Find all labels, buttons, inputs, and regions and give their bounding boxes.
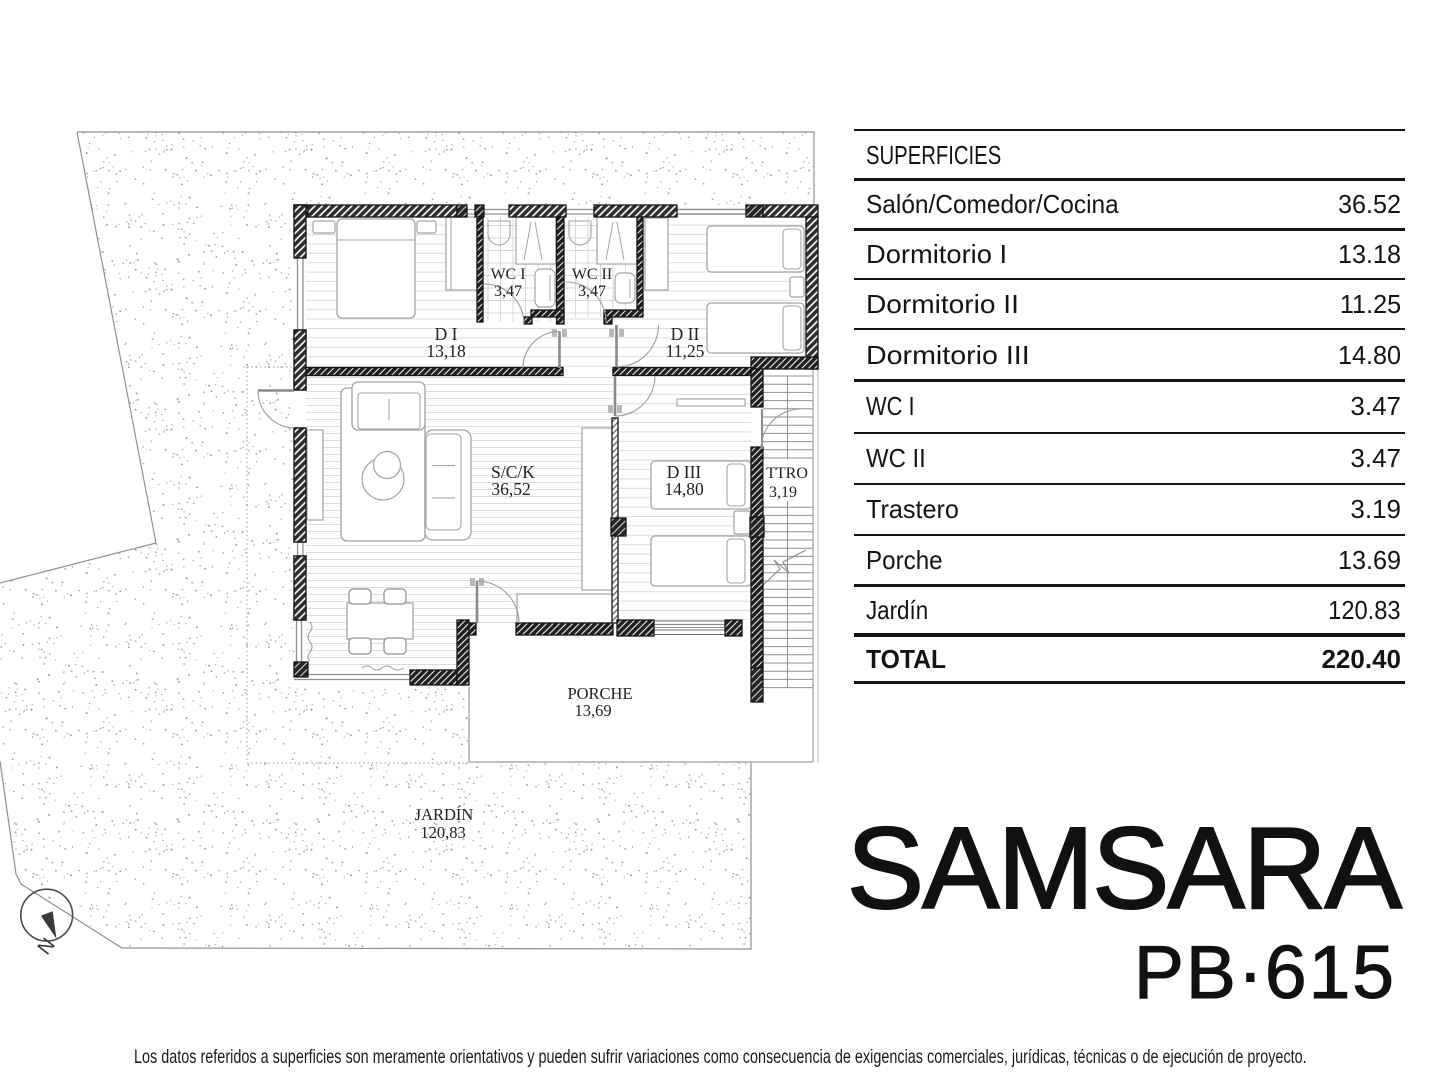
svg-text:WC I: WC I <box>490 266 525 283</box>
svg-text:11,25: 11,25 <box>666 341 705 361</box>
svg-text:3,47: 3,47 <box>578 283 606 300</box>
svg-text:JARDÍN: JARDÍN <box>415 805 474 824</box>
svg-text:13,69: 13,69 <box>574 701 611 720</box>
svg-text:3,47: 3,47 <box>494 283 522 300</box>
svg-text:WC II: WC II <box>572 266 612 283</box>
svg-text:120,83: 120,83 <box>420 823 465 842</box>
svg-text:14,80: 14,80 <box>664 479 704 499</box>
svg-text:3,19: 3,19 <box>769 484 797 501</box>
svg-text:36,52: 36,52 <box>491 479 530 499</box>
svg-text:N: N <box>34 934 60 959</box>
svg-text:13,18: 13,18 <box>426 341 466 361</box>
svg-text:TTRO: TTRO <box>766 465 808 482</box>
